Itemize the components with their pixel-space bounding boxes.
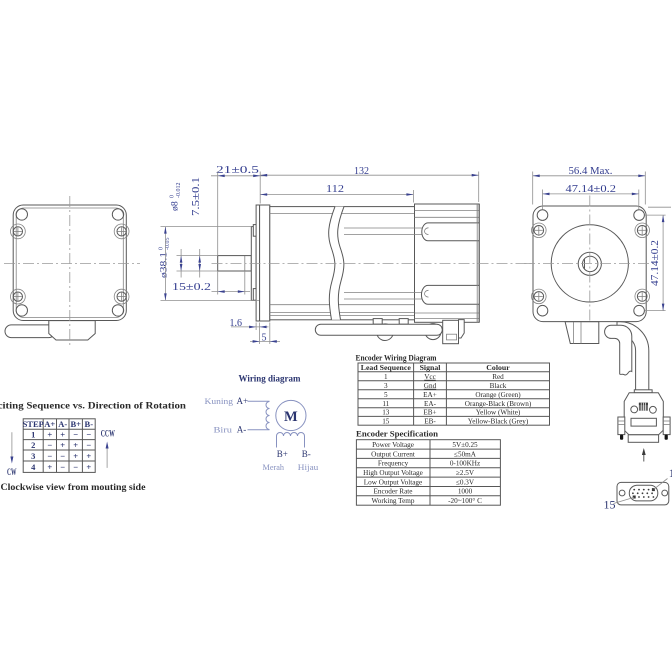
svg-text:CCW: CCW <box>101 429 115 439</box>
svg-text:3: 3 <box>31 451 35 461</box>
svg-text:≤50mA: ≤50mA <box>454 450 477 458</box>
svg-text:−: − <box>60 462 65 472</box>
svg-text:B+: B+ <box>277 449 288 459</box>
svg-text:Clockwise view from mouting si: Clockwise view from mouting side <box>1 483 146 493</box>
svg-text:Gnd: Gnd <box>424 382 437 390</box>
svg-text:Hijau: Hijau <box>298 462 319 472</box>
svg-text:Exciting Sequence vs. Directio: Exciting Sequence vs. Direction of Rotat… <box>0 401 187 411</box>
svg-text:Yellow (White): Yellow (White) <box>476 409 521 417</box>
svg-text:−: − <box>86 429 91 439</box>
svg-text:Black: Black <box>490 382 507 390</box>
svg-text:Wiring diagram: Wiring diagram <box>239 374 301 384</box>
svg-text:Kuning: Kuning <box>205 396 234 406</box>
svg-text:47.14±0.2: 47.14±0.2 <box>566 184 617 195</box>
svg-text:Merah: Merah <box>263 462 285 472</box>
svg-text:Working Temp: Working Temp <box>372 497 415 505</box>
svg-text:-0.012: -0.012 <box>176 183 182 199</box>
svg-text:Orange (Green): Orange (Green) <box>475 391 521 399</box>
svg-text:B-: B- <box>85 419 94 429</box>
svg-text:EB+: EB+ <box>423 409 436 417</box>
svg-text:5V±0.25: 5V±0.25 <box>452 441 478 449</box>
svg-text:A+: A+ <box>237 396 249 406</box>
svg-text:−: − <box>73 462 78 472</box>
svg-text:STEP: STEP <box>23 419 44 429</box>
svg-text:Encoder Specification: Encoder Specification <box>356 429 438 439</box>
svg-text:4: 4 <box>31 462 36 472</box>
svg-text:−: − <box>86 440 91 450</box>
svg-text:Power Voltage: Power Voltage <box>372 441 414 449</box>
svg-text:EA-: EA- <box>424 400 437 408</box>
svg-text:≥2.5V: ≥2.5V <box>456 469 475 477</box>
svg-text:11: 11 <box>382 400 389 408</box>
svg-text:+: + <box>86 451 91 461</box>
svg-text:Lead Sequence: Lead Sequence <box>361 363 412 372</box>
svg-text:B+: B+ <box>70 419 81 429</box>
svg-text:High Output Voltage: High Output Voltage <box>363 469 423 477</box>
svg-text:Encoder Rate: Encoder Rate <box>374 488 413 496</box>
svg-text:+: + <box>73 440 78 450</box>
svg-text:Low Output Voltage: Low Output Voltage <box>364 478 422 486</box>
svg-text:Vcc: Vcc <box>424 373 436 381</box>
svg-text:47.14±0.2: 47.14±0.2 <box>650 240 661 286</box>
svg-text:Red: Red <box>492 373 504 381</box>
svg-text:1000: 1000 <box>458 488 473 496</box>
svg-text:−: − <box>47 451 52 461</box>
svg-text:3: 3 <box>384 382 388 390</box>
svg-text:Output Current: Output Current <box>371 450 415 458</box>
svg-text:Signal: Signal <box>420 363 442 372</box>
svg-text:0: 0 <box>159 247 165 250</box>
svg-text:Colour: Colour <box>486 363 510 372</box>
svg-text:−: − <box>47 440 52 450</box>
svg-text:Encoder Wiring Diagram: Encoder Wiring Diagram <box>356 353 437 363</box>
svg-text:A+: A+ <box>44 419 55 429</box>
svg-text:5: 5 <box>384 391 388 399</box>
svg-text:-20~100° C: -20~100° C <box>448 497 482 505</box>
svg-text:2: 2 <box>31 440 35 450</box>
svg-text:1: 1 <box>384 373 388 381</box>
svg-text:M: M <box>284 409 298 425</box>
svg-text:CW: CW <box>7 467 17 477</box>
svg-text:13: 13 <box>382 409 390 417</box>
svg-text:≤0.3V: ≤0.3V <box>456 478 475 486</box>
svg-text:15: 15 <box>382 417 390 425</box>
svg-text:15±0.2: 15±0.2 <box>172 282 211 293</box>
svg-text:Frequency: Frequency <box>378 460 409 468</box>
svg-text:1: 1 <box>31 429 35 439</box>
svg-text:0: 0 <box>170 195 176 198</box>
svg-text:21±0.5: 21±0.5 <box>216 165 259 176</box>
svg-text:A-: A- <box>237 424 247 434</box>
svg-text:Orange-Black (Brown): Orange-Black (Brown) <box>465 400 532 408</box>
svg-text:+: + <box>60 440 65 450</box>
svg-text:+: + <box>86 462 91 472</box>
svg-text:+: + <box>47 462 52 472</box>
svg-text:112: 112 <box>326 184 344 195</box>
svg-text:−: − <box>60 451 65 461</box>
svg-text:+: + <box>47 429 52 439</box>
svg-text:Yellow-Black (Grey): Yellow-Black (Grey) <box>468 417 529 425</box>
svg-text:7.5±0.1: 7.5±0.1 <box>191 177 202 216</box>
svg-text:ø38.1: ø38.1 <box>159 252 170 278</box>
svg-text:EA+: EA+ <box>423 391 437 399</box>
svg-text:56.4 Max.: 56.4 Max. <box>569 166 613 177</box>
svg-text:+: + <box>73 451 78 461</box>
svg-text:B-: B- <box>302 449 311 459</box>
svg-text:−: − <box>73 429 78 439</box>
svg-text:15: 15 <box>604 498 616 512</box>
svg-text:A-: A- <box>58 419 67 429</box>
svg-text:+: + <box>60 429 65 439</box>
svg-text:EB-: EB- <box>424 417 436 425</box>
svg-text:0-100KHz: 0-100KHz <box>450 460 480 468</box>
svg-text:ø8: ø8 <box>170 201 181 211</box>
svg-text:Biru: Biru <box>214 424 233 434</box>
